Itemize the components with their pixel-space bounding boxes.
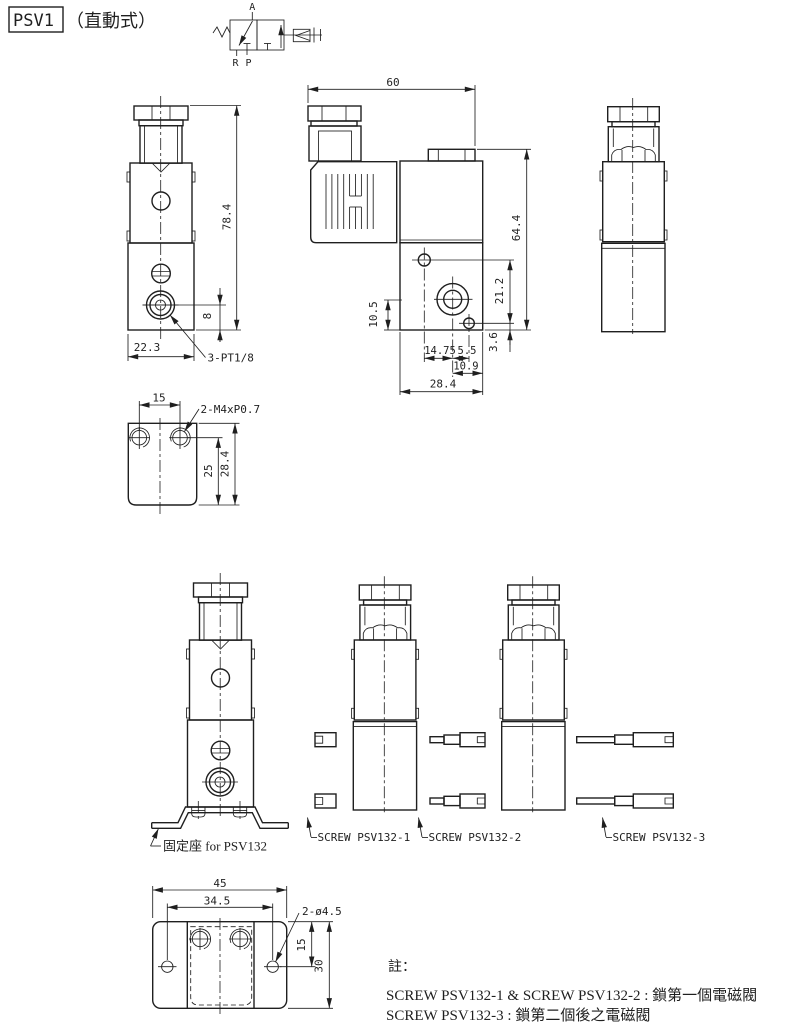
side-width-dim: 60 (386, 76, 399, 89)
drawing-canvas: PSV1 （直動式） A R P 78.4 8 (0, 0, 800, 1026)
spring-icon (213, 27, 230, 37)
tapped-hole-left (189, 928, 211, 950)
header: PSV1 （直動式） (9, 7, 156, 32)
din-connector-body (311, 162, 397, 243)
port-a-label: A (249, 2, 255, 13)
model-label: PSV1 (13, 11, 54, 31)
rear-view (600, 98, 667, 334)
note-line-1: SCREW PSV132-1 & SCREW PSV132-2 : 鎖第一個電磁… (386, 986, 757, 1004)
note-line-2: SCREW PSV132-3 : 鎖第二個後之電磁閥 (386, 1006, 650, 1024)
plate-hole-spacing-dim: 34.5 (204, 895, 231, 908)
side-hole-pitch-dim: 21.2 (493, 278, 506, 305)
plate-depth-dim: 30 (313, 959, 326, 972)
assembly-valve-1 (187, 573, 255, 817)
side-height-dim: 64.4 (510, 214, 523, 241)
assembly-valve-3 (500, 576, 567, 812)
valve-body-side (400, 243, 483, 330)
bracket-height-dim: 28.4 (219, 450, 232, 477)
connector-washer (311, 121, 357, 126)
tapped-hole-right (229, 928, 251, 950)
side-body-width-dim: 28.4 (430, 378, 457, 391)
plate-hole-label: 2-ø4.5 (302, 905, 342, 918)
plate-hole-offset-dim: 15 (295, 938, 308, 951)
screw-label-1: SCREW PSV132-1 (318, 831, 411, 844)
flow-arrow-left (239, 21, 253, 46)
front-view: 78.4 8 22.3 3-PT1/8 (127, 96, 254, 365)
side-hole-x-dim: 14.75 (424, 345, 456, 357)
side-port-hole-dim: 5.5 (458, 345, 477, 357)
through-hole-left (158, 961, 177, 972)
front-width-dim: 22.3 (134, 341, 161, 354)
bracket-side-view: 15 2-M4xP0.7 25 28.4 (128, 392, 260, 518)
port-r-label: R (232, 58, 239, 69)
top-hex-nut (428, 149, 475, 161)
bracket-thread-label: 2-M4xP0.7 (201, 403, 261, 416)
side-hole-bottom-dim: 3.6 (487, 332, 500, 352)
side-port-bottom-dim: 10.5 (367, 301, 380, 328)
plate-width-dim: 45 (213, 877, 226, 890)
port-p-label: P (245, 58, 251, 69)
coil-body-side (400, 161, 483, 243)
assembly-view: 固定座 for PSV132 SCREW PSV132-1 SCREW PSV1… (151, 573, 706, 854)
note-heading: 註： (388, 959, 416, 975)
side-view: 60 64.4 21.2 3.6 10.5 14.75 5.5 10.9 28.… (308, 76, 531, 395)
side-port-edge-dim: 10.9 (453, 361, 478, 373)
assembly-bracket-label: 固定座 for PSV132 (163, 839, 267, 854)
valve-symbol: A R P (213, 2, 322, 69)
bracket-hole-spacing-dim: 15 (152, 392, 165, 405)
notes-block: 註： SCREW PSV132-1 & SCREW PSV132-2 : 鎖第一… (386, 959, 757, 1024)
screw-label-3: SCREW PSV132-3 (613, 831, 706, 844)
front-port-offset-dim: 8 (201, 313, 214, 320)
bracket-hole-bottom-dim: 25 (202, 464, 215, 477)
bracket-top-view: 45 34.5 2-ø4.5 15 30 (153, 877, 342, 1017)
connector-vents (326, 174, 373, 229)
tapped-hole-left (129, 427, 151, 449)
front-height-dim: 78.4 (221, 203, 234, 230)
technical-drawing-page: PSV1 （直動式） A R P 78.4 8 (0, 0, 800, 1026)
bracket-plate (128, 423, 196, 505)
type-label: （直動式） (66, 11, 156, 31)
assembly-valve-2 (352, 576, 419, 812)
through-hole-right (264, 961, 282, 972)
tapped-hole-right (169, 427, 191, 449)
front-port-thread-label: 3-PT1/8 (208, 352, 254, 365)
screw-label-2: SCREW PSV132-2 (429, 831, 522, 844)
connector-nut (308, 106, 361, 121)
